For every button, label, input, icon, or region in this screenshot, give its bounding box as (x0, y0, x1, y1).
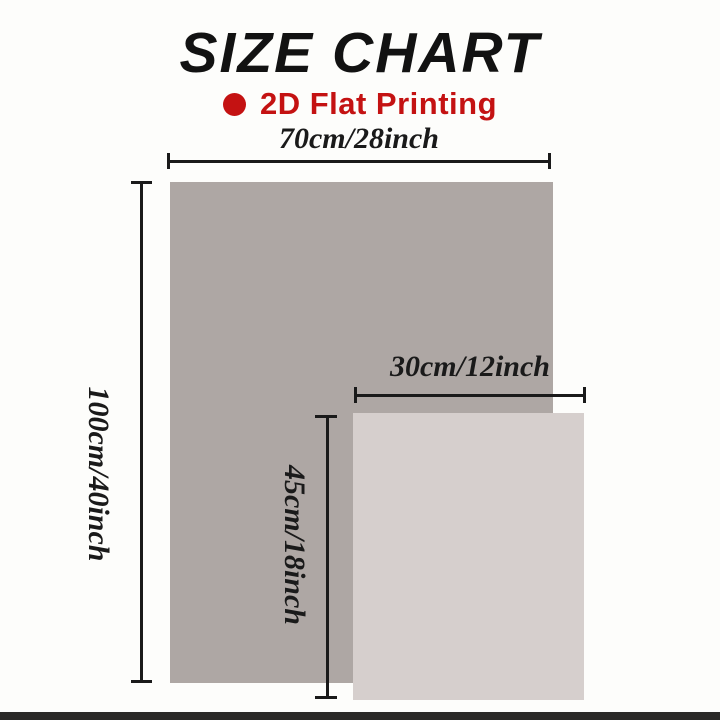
subtitle-label: 2D Flat Printing (260, 86, 497, 122)
large-width-dim-line (167, 160, 551, 163)
size-chart-canvas: SIZE CHART 2D Flat Printing 70cm/28inch … (0, 0, 720, 720)
small-height-dim-label: 45cm/18inch (277, 395, 311, 695)
small-width-dim-label: 30cm/12inch (355, 350, 585, 384)
large-width-dim-label: 70cm/28inch (167, 122, 551, 156)
large-height-dim-line (140, 182, 143, 683)
small-height-dim-line (326, 416, 329, 699)
large-height-dim-tick-bottom (131, 680, 152, 683)
small-height-dim-tick-bottom (315, 696, 337, 699)
small-print-rect (353, 413, 584, 700)
small-width-dim-tick-left (354, 387, 357, 403)
subtitle-row: 2D Flat Printing (0, 86, 720, 122)
large-height-dim-label: 100cm/40inch (81, 324, 115, 624)
large-width-dim-tick-left (167, 153, 170, 169)
small-height-dim-tick-top (315, 415, 337, 418)
large-width-dim-tick-right (548, 153, 551, 169)
page-title: SIZE CHART (0, 20, 720, 86)
bottom-bar (0, 712, 720, 720)
large-height-dim-tick-top (131, 181, 152, 184)
small-width-dim-tick-right (583, 387, 586, 403)
red-dot-icon (223, 93, 246, 116)
small-width-dim-line (355, 394, 585, 397)
